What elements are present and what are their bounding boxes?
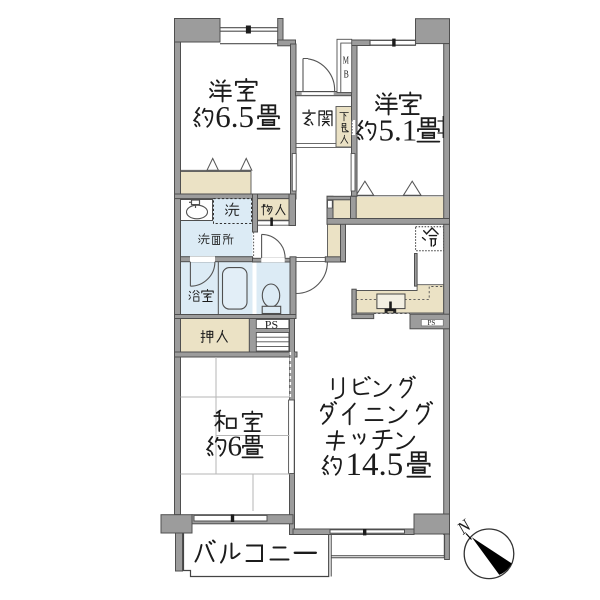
svg-text:14.5: 14.5 — [346, 447, 404, 483]
svg-text:5.1: 5.1 — [379, 113, 418, 148]
svg-text:6.5: 6.5 — [215, 99, 254, 134]
svg-text:PS: PS — [428, 319, 436, 327]
svg-text:PS: PS — [265, 318, 278, 332]
svg-text:B: B — [344, 70, 349, 81]
svg-text:6: 6 — [228, 430, 243, 462]
svg-text:M: M — [343, 56, 350, 67]
